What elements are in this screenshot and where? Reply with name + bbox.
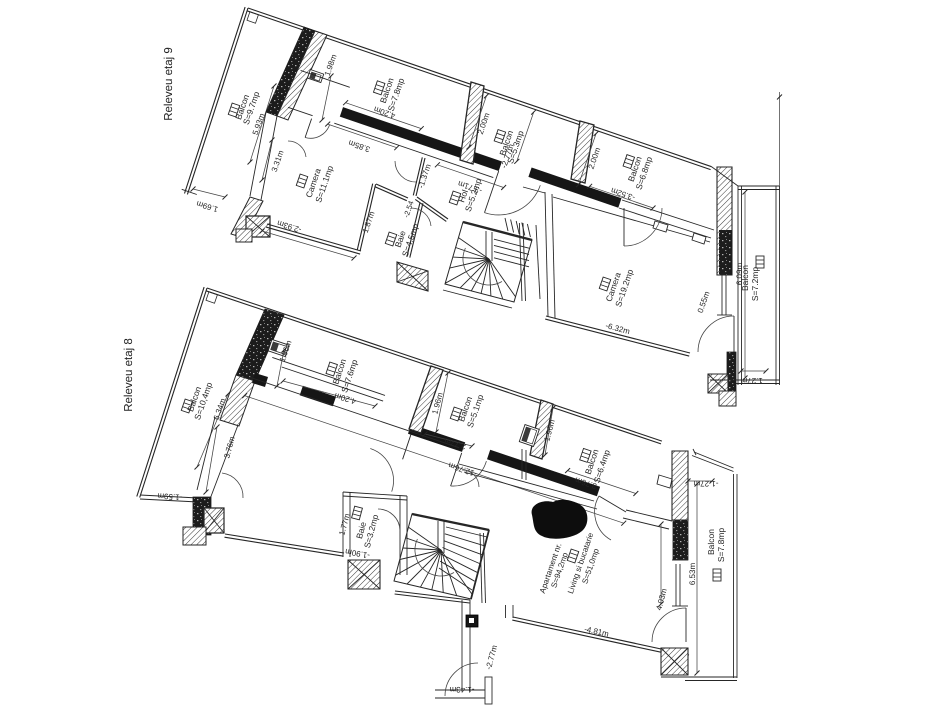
svg-text:-1.27m: -1.27m [693, 479, 718, 488]
svg-text:-1.59m: -1.59m [157, 491, 183, 502]
svg-text:Balcon: Balcon [740, 265, 750, 291]
svg-text:-1.27m: -1.27m [740, 376, 765, 385]
svg-text:S=7.8mp: S=7.8mp [716, 528, 726, 563]
svg-text:S=7.2mp: S=7.2mp [750, 267, 760, 302]
svg-text:Releveu etaj 8: Releveu etaj 8 [123, 338, 135, 412]
svg-text:Balcon: Balcon [706, 529, 716, 555]
svg-text:6.53m: 6.53m [688, 563, 697, 586]
svg-text:Releveu etaj 9: Releveu etaj 9 [163, 47, 175, 121]
svg-text:-1.43m: -1.43m [449, 685, 474, 694]
